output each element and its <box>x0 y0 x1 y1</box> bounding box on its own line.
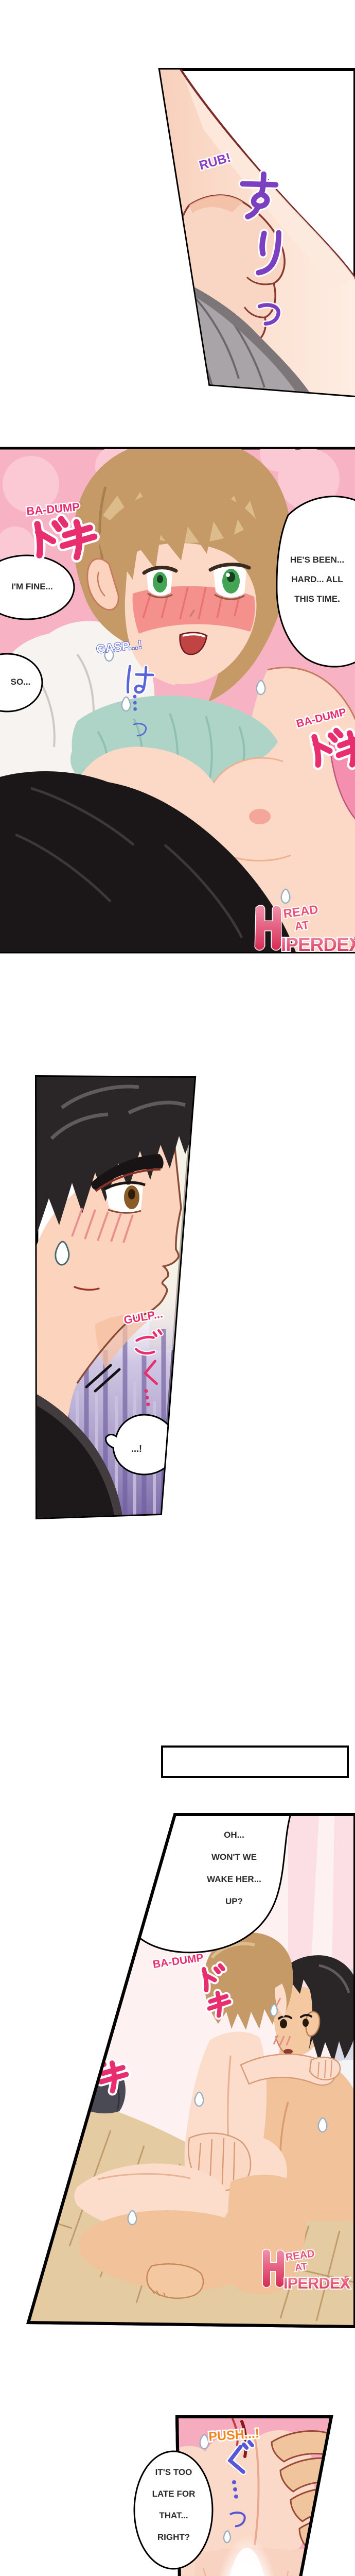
svg-text:AT: AT <box>294 2261 308 2274</box>
svg-text:AT: AT <box>294 918 310 933</box>
svg-text:BA-DUMP: BA-DUMP <box>49 2025 101 2044</box>
svg-text:IPERDEX: IPERDEX <box>281 934 355 955</box>
svg-text:IPERDEX: IPERDEX <box>283 2274 350 2292</box>
svg-text:...!: ...! <box>131 1444 142 1454</box>
